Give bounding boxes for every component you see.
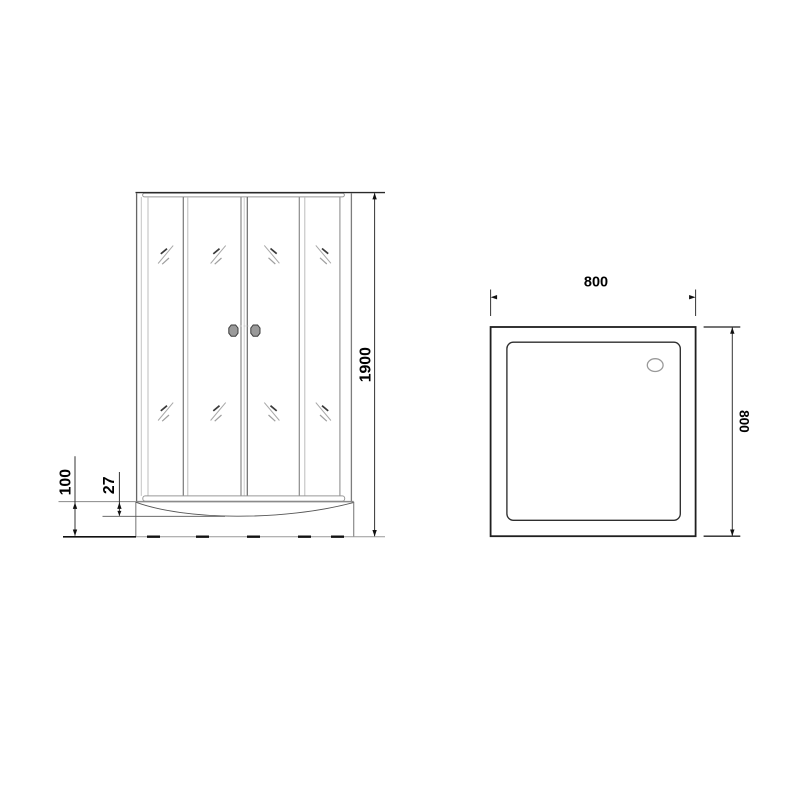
svg-text:27: 27 [101,476,118,494]
svg-text:800: 800 [584,275,608,291]
svg-text:1900: 1900 [358,347,375,382]
svg-text:100: 100 [58,469,75,496]
svg-text:800: 800 [737,410,752,433]
